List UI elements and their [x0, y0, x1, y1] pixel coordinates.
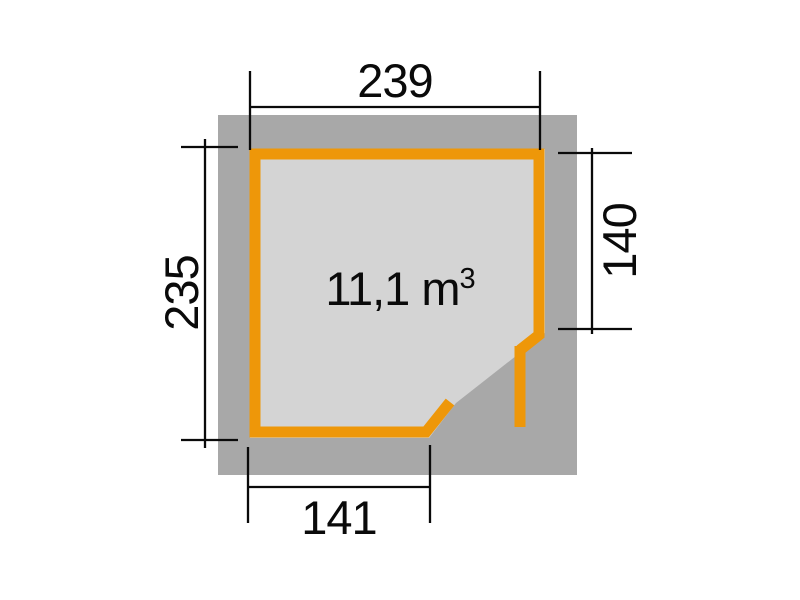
floor-plan-drawing: 239 235 140 141 11,1 m3 — [0, 0, 800, 600]
dimension-top-label: 239 — [357, 54, 432, 107]
dimension-bottom-label: 141 — [301, 491, 376, 544]
dimension-right-label: 140 — [593, 203, 646, 278]
volume-value: 11,1 m — [325, 262, 459, 315]
volume-exponent: 3 — [460, 263, 475, 295]
dimension-left-label: 235 — [155, 255, 208, 330]
volume-label: 11,1 m3 — [325, 262, 474, 315]
floor-plan-canvas: 239 235 140 141 11,1 m3 — [0, 0, 800, 600]
